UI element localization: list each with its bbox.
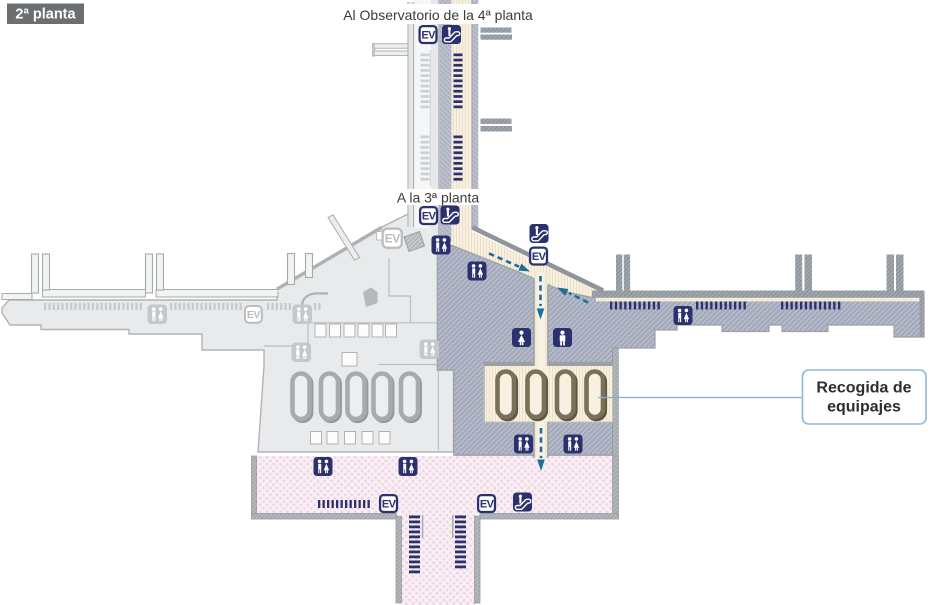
svg-text:A la 3ª planta: A la 3ª planta bbox=[397, 190, 479, 206]
svg-text:Recogida de: Recogida de bbox=[816, 380, 911, 397]
svg-text:equipajes: equipajes bbox=[827, 399, 901, 416]
svg-text:Al Observatorio de la 4ª plant: Al Observatorio de la 4ª planta bbox=[343, 7, 533, 23]
svg-text:2ª planta: 2ª planta bbox=[15, 7, 76, 23]
